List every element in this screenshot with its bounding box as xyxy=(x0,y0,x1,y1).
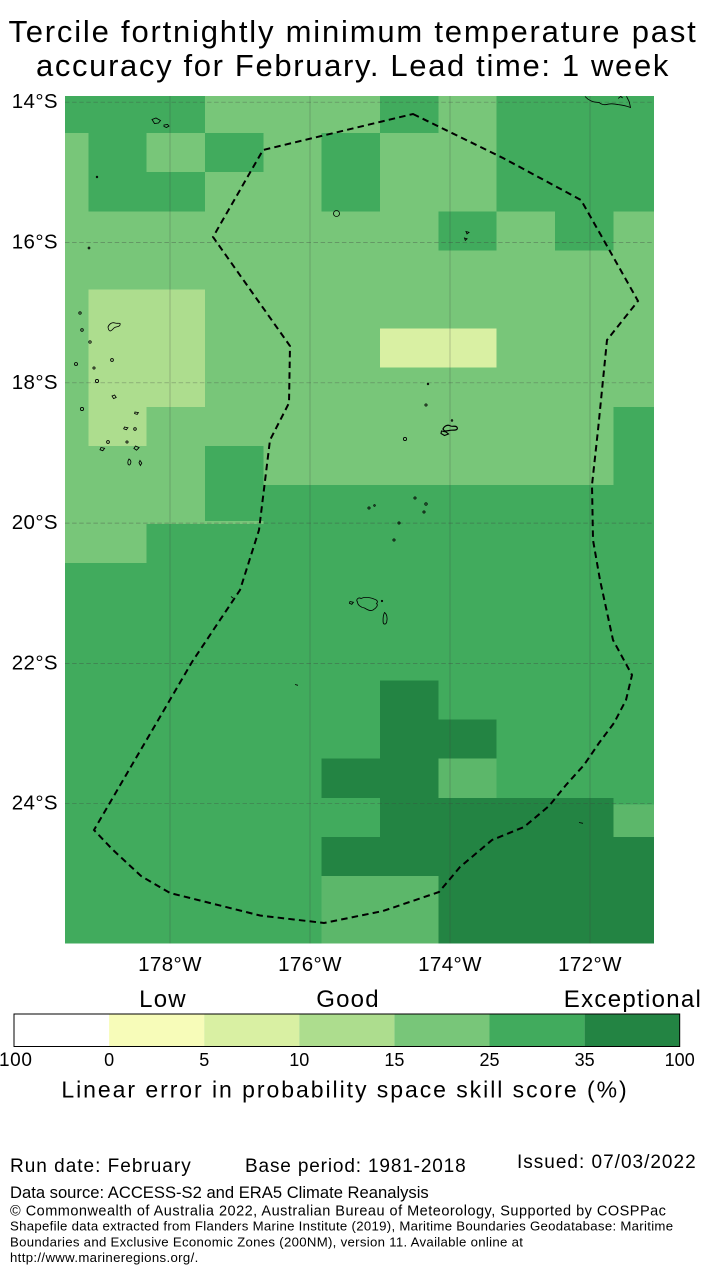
svg-text:174°W: 174°W xyxy=(418,953,482,976)
svg-text:© Commonwealth of Australia 20: © Commonwealth of Australia 2022, Austra… xyxy=(10,1204,666,1220)
svg-text:18°S: 18°S xyxy=(12,371,58,394)
svg-text:35: 35 xyxy=(575,1050,595,1070)
svg-text:Exceptional: Exceptional xyxy=(564,986,702,1013)
svg-text:22°S: 22°S xyxy=(12,651,58,674)
svg-text:178°W: 178°W xyxy=(138,953,202,976)
svg-text:0: 0 xyxy=(104,1050,114,1070)
svg-text:Run date: February: Run date: February xyxy=(10,1156,192,1177)
svg-text:24°S: 24°S xyxy=(12,792,58,815)
svg-text:Base period: 1981-2018: Base period: 1981-2018 xyxy=(245,1156,467,1177)
svg-text:20°S: 20°S xyxy=(12,511,58,534)
svg-text:172°W: 172°W xyxy=(558,953,622,976)
svg-text:100: 100 xyxy=(0,1050,33,1071)
svg-text:Low: Low xyxy=(139,986,187,1013)
svg-text:http://www.marineregions.org/.: http://www.marineregions.org/. xyxy=(10,1250,199,1265)
svg-text:Issued: 07/03/2022: Issued: 07/03/2022 xyxy=(517,1152,697,1173)
svg-text:accuracy for February. Lead ti: accuracy for February. Lead time: 1 week xyxy=(36,48,670,83)
svg-text:14°S: 14°S xyxy=(12,90,58,113)
svg-text:Boundaries and Exclusive Econo: Boundaries and Exclusive Economic Zones … xyxy=(10,1235,523,1250)
svg-text:Good: Good xyxy=(316,986,380,1013)
svg-text:100: 100 xyxy=(665,1050,695,1070)
svg-text:10: 10 xyxy=(289,1050,309,1070)
svg-text:Tercile fortnightly minimum te: Tercile fortnightly minimum temperature … xyxy=(8,14,697,49)
svg-text:176°W: 176°W xyxy=(278,953,342,976)
svg-text:Linear error in probability sp: Linear error in probability space skill … xyxy=(61,1077,628,1103)
svg-text:15: 15 xyxy=(384,1050,404,1070)
svg-text:16°S: 16°S xyxy=(12,231,58,254)
svg-text:5: 5 xyxy=(199,1050,209,1070)
svg-text:Data source: ACCESS-S2 and ERA: Data source: ACCESS-S2 and ERA5 Climate … xyxy=(10,1183,429,1202)
svg-text:Shapefile data extracted from: Shapefile data extracted from Flanders M… xyxy=(10,1219,673,1234)
svg-text:25: 25 xyxy=(479,1050,499,1070)
